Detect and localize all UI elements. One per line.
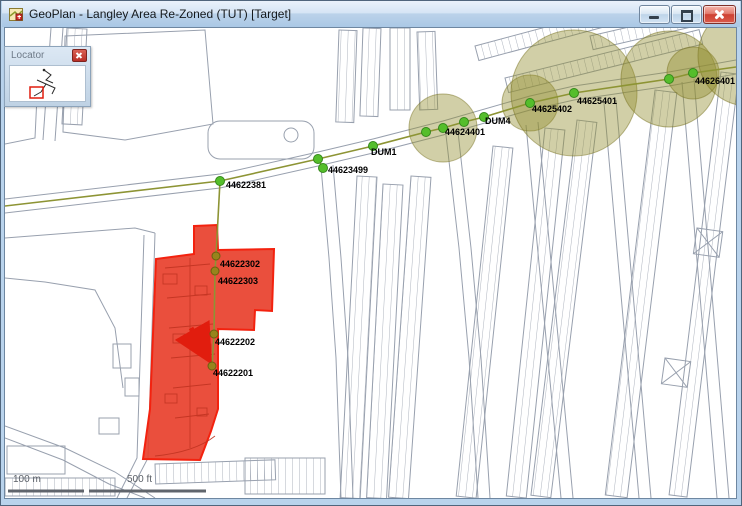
node-label: 44625402 bbox=[532, 104, 572, 114]
node-label: 44622202 bbox=[215, 337, 255, 347]
title-bar[interactable]: GeoPlan - Langley Area Re-Zoned (TUT) [T… bbox=[2, 1, 740, 27]
geoplan-window: GeoPlan - Langley Area Re-Zoned (TUT) [T… bbox=[0, 0, 742, 506]
network-node[interactable] bbox=[216, 177, 225, 186]
maximize-button[interactable] bbox=[671, 5, 702, 24]
node-label: DUM4 bbox=[485, 116, 511, 126]
node-label: 44622302 bbox=[220, 259, 260, 269]
locator-close-button[interactable] bbox=[72, 49, 87, 62]
locator-title: Locator bbox=[5, 50, 72, 61]
network-node[interactable] bbox=[319, 164, 328, 173]
locator-title-bar[interactable]: Locator bbox=[5, 47, 90, 63]
locator-window[interactable]: Locator bbox=[4, 46, 91, 107]
node-label: 44626401 bbox=[695, 76, 735, 86]
app-icon bbox=[9, 7, 24, 22]
window-title: GeoPlan - Langley Area Re-Zoned (TUT) [T… bbox=[29, 7, 291, 21]
node-label: 44625401 bbox=[577, 96, 617, 106]
scale-label-imperial: 500 ft bbox=[127, 474, 152, 485]
node-label: 44623499 bbox=[328, 165, 368, 175]
minimize-icon bbox=[649, 16, 659, 19]
network-node[interactable] bbox=[211, 267, 219, 275]
node-label: 44622201 bbox=[213, 368, 253, 378]
map-canvas bbox=[5, 28, 736, 498]
maximize-icon bbox=[681, 10, 693, 22]
network-node[interactable] bbox=[665, 75, 674, 84]
node-label: 44624401 bbox=[445, 127, 485, 137]
network-node[interactable] bbox=[422, 128, 431, 137]
locator-sketch bbox=[10, 66, 85, 103]
node-label: DUM1 bbox=[371, 147, 397, 157]
locator-map[interactable] bbox=[9, 65, 86, 102]
scale-label-metric: 100 m bbox=[13, 474, 41, 485]
minimize-button[interactable] bbox=[639, 5, 670, 24]
node-label: 44622303 bbox=[218, 276, 258, 286]
close-button[interactable] bbox=[703, 5, 736, 24]
network-node[interactable] bbox=[212, 252, 220, 260]
node-label: 44622381 bbox=[226, 180, 266, 190]
network-node[interactable] bbox=[460, 118, 469, 127]
geoplan-map[interactable]: 44622381 44623499 DUM1 44624401 DUM4 446… bbox=[5, 28, 736, 498]
network-node[interactable] bbox=[314, 155, 323, 164]
